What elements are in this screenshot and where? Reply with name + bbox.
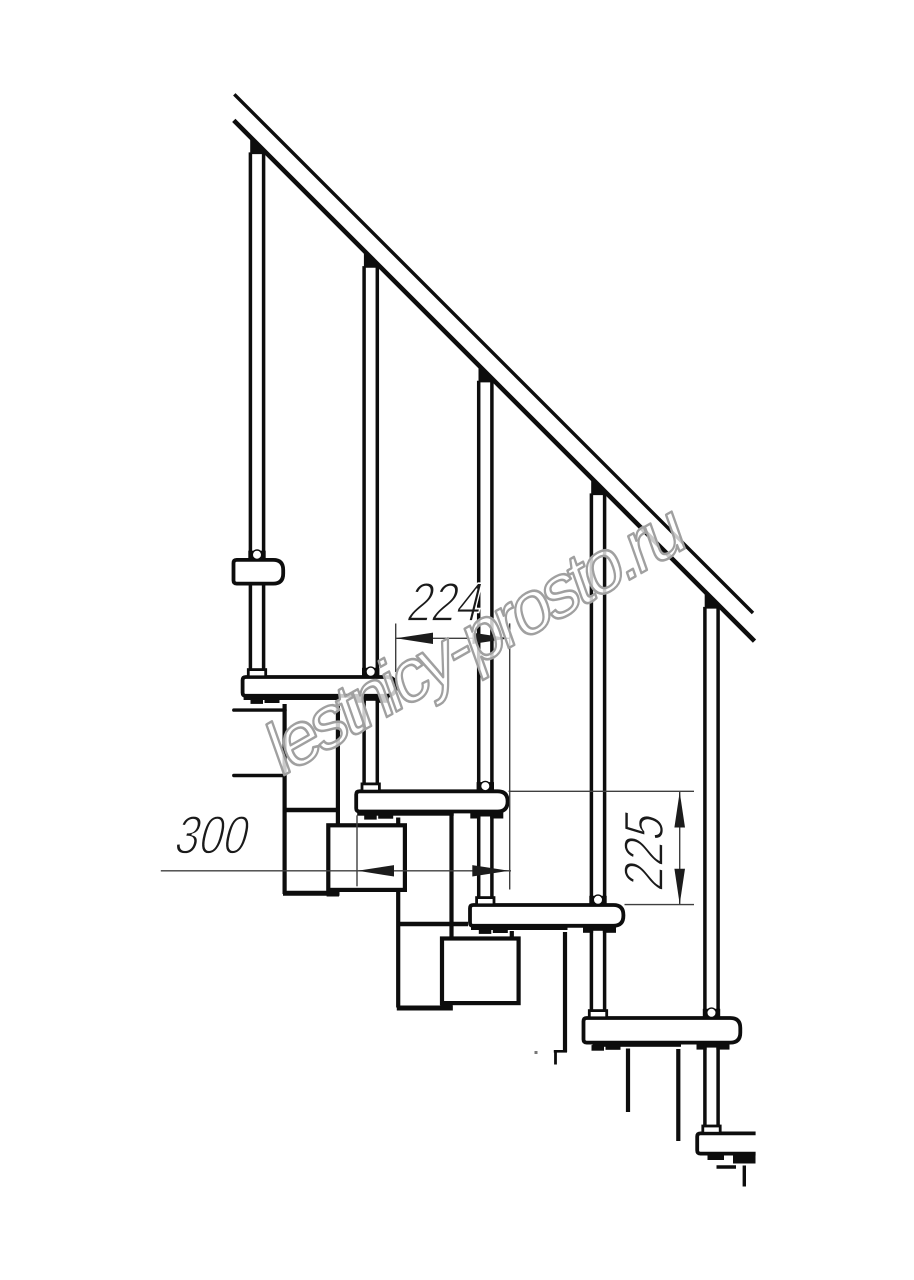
svg-text:300: 300 [170,804,257,865]
svg-text:225: 225 [614,805,676,895]
